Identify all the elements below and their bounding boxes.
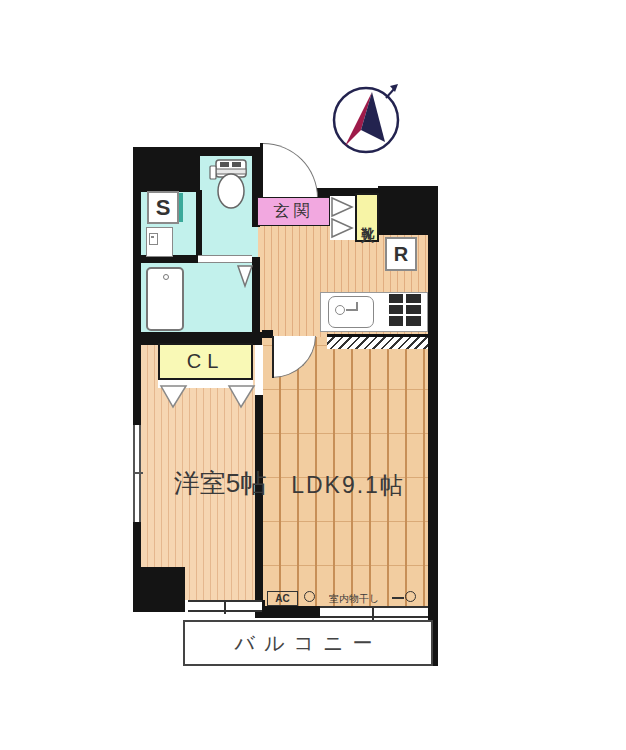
storage-box: S	[147, 191, 179, 224]
window-western-room-balcony	[188, 600, 262, 612]
stove-icon	[389, 294, 421, 326]
ldk-door-leaf	[272, 336, 274, 378]
window-ldk-balcony	[320, 606, 428, 618]
shoe-box-label: 靴入	[358, 217, 376, 219]
shoe-door-swing-icon	[330, 196, 355, 240]
bathtub-icon	[146, 267, 184, 331]
wall-ldk-bottom	[263, 606, 320, 618]
western-room-label: 洋室5帖	[150, 466, 290, 501]
ac-hook-icon	[304, 591, 315, 602]
storage-door-icon	[179, 193, 183, 222]
ldk-label: LDK9.1帖	[272, 470, 424, 501]
wall-top-toilet	[200, 147, 258, 156]
compass-icon	[330, 82, 404, 156]
washing-machine-icon	[146, 227, 173, 257]
storage-label: S	[156, 195, 171, 221]
drying-line	[392, 597, 404, 599]
wall-top-left-block	[133, 147, 200, 192]
counter-hatch	[327, 334, 428, 349]
balcony-label: バルコニー	[235, 630, 382, 657]
wall-left-lower	[133, 522, 141, 570]
closet-label: CL	[187, 350, 225, 373]
ac-box: AC	[267, 591, 298, 606]
closet-door-icons	[158, 384, 258, 410]
wall-storage-toilet	[196, 190, 202, 258]
drying-hook-icon	[405, 591, 416, 602]
wall-right	[428, 235, 438, 666]
wall-left-upper	[133, 147, 141, 425]
ac-label: AC	[275, 593, 289, 604]
shoe-box: 靴入	[355, 193, 379, 242]
floor-plan: 玄関 靴入 R S	[0, 0, 626, 750]
bathroom-sliding-door	[198, 255, 252, 263]
toilet-icon	[209, 158, 249, 210]
refrigerator-box: R	[385, 237, 417, 271]
wall-top-right-block	[378, 186, 438, 235]
balcony: バルコニー	[183, 620, 433, 666]
bathroom-door-icon	[236, 264, 254, 288]
indoor-drying-label: 室内物干し	[329, 592, 379, 606]
window-west	[133, 425, 141, 522]
wall-bottom-left-block	[133, 567, 185, 612]
entrance-label-box: 玄関	[257, 197, 330, 226]
closet-box: CL	[158, 343, 253, 380]
refrigerator-label: R	[394, 243, 408, 266]
kitchen-sink-icon	[328, 296, 374, 328]
entrance-label: 玄関	[274, 201, 314, 222]
front-door-swing-icon	[263, 143, 318, 198]
